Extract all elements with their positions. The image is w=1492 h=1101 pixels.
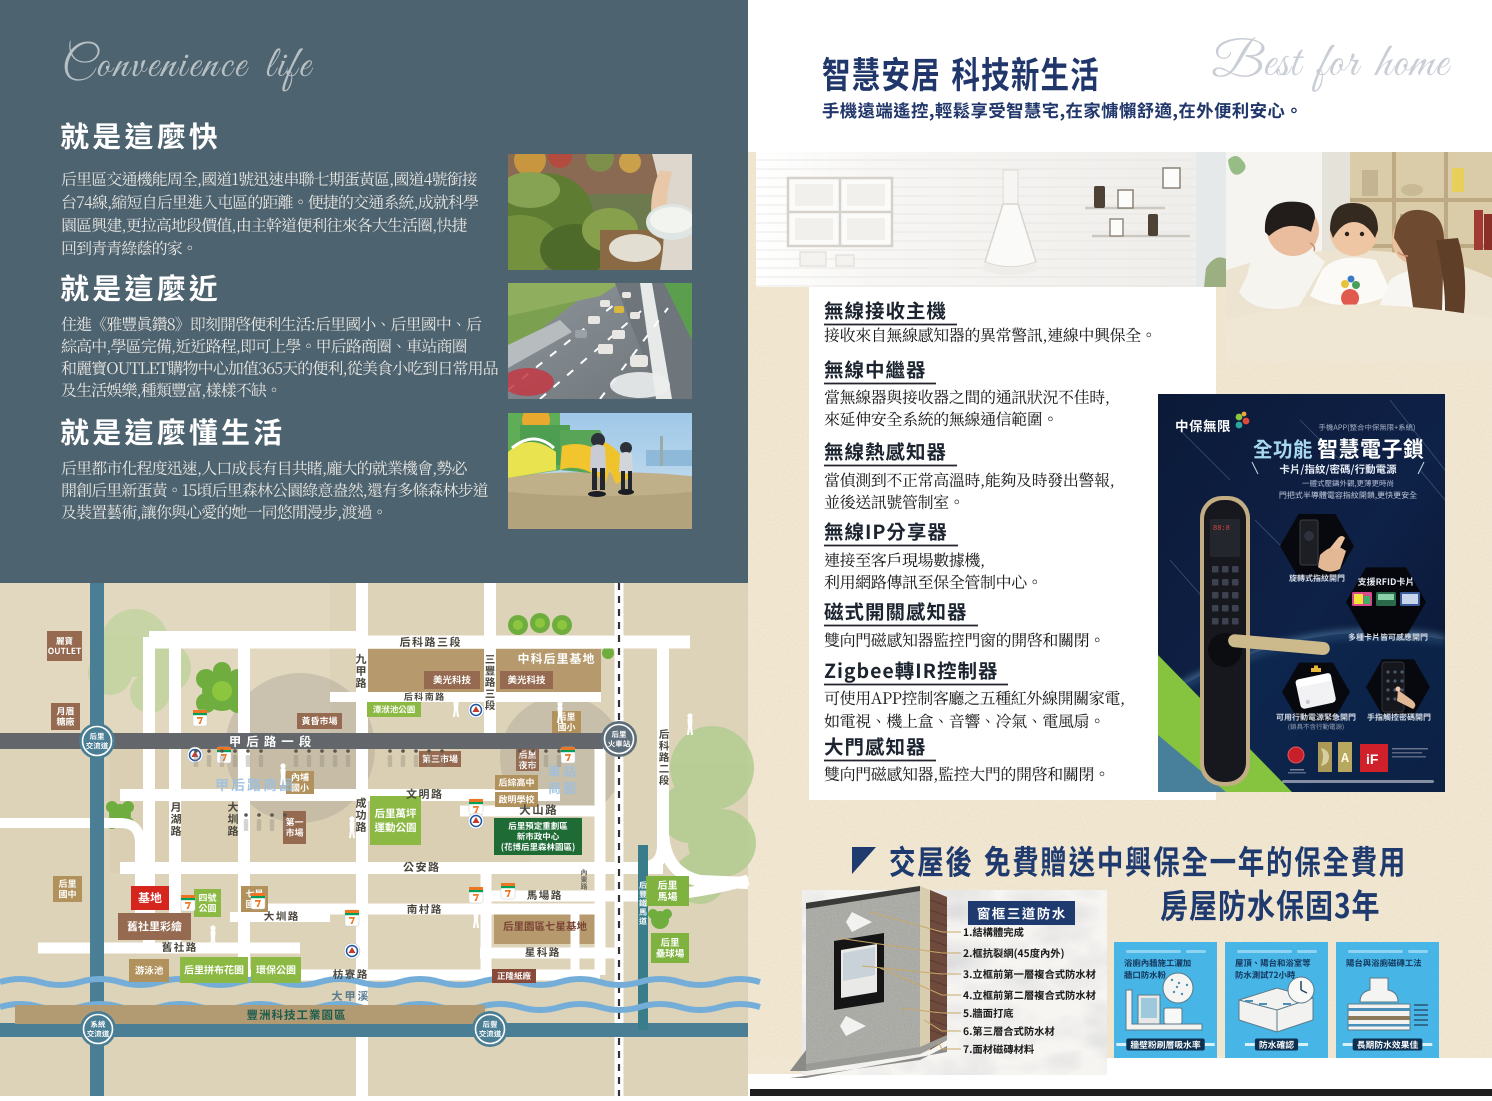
- svg-text:iF: iF: [1366, 751, 1379, 767]
- svg-text:88:8: 88:8: [1213, 525, 1230, 533]
